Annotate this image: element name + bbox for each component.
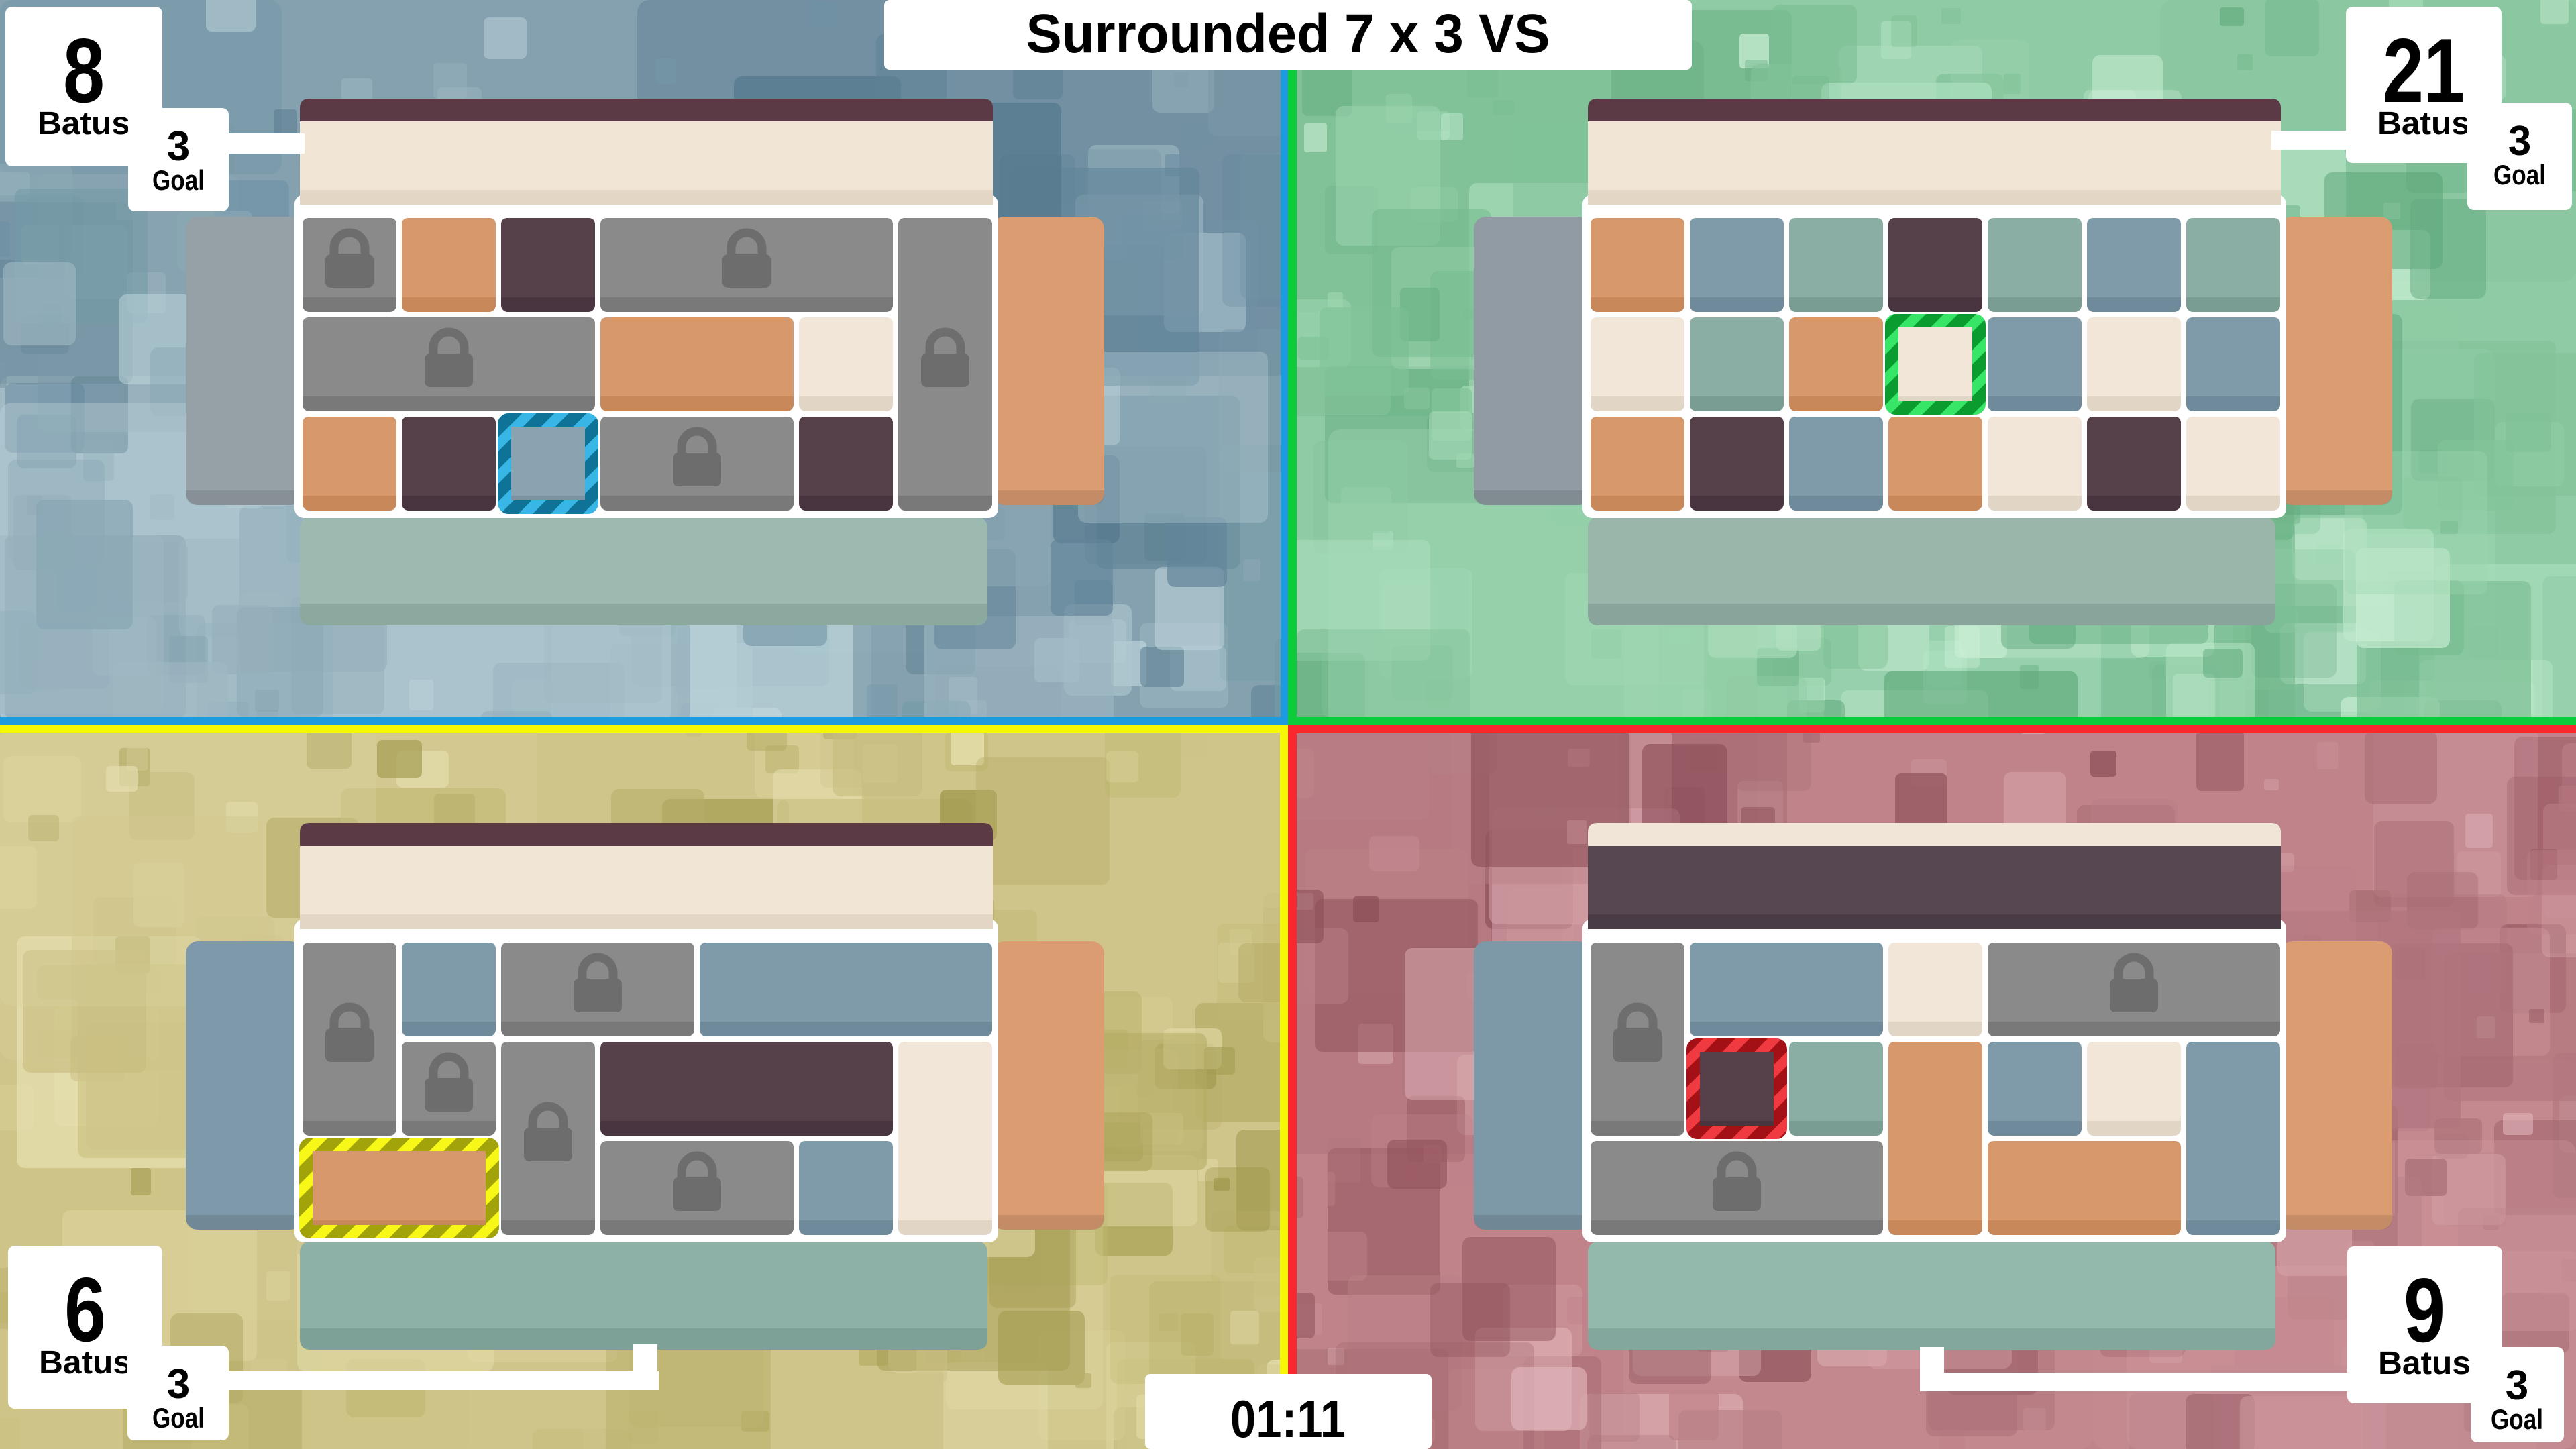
svg-text:3: 3 bbox=[2506, 1362, 2528, 1409]
svg-text:3: 3 bbox=[167, 1361, 190, 1407]
svg-text:Batus: Batus bbox=[39, 1345, 131, 1381]
svg-text:Batus: Batus bbox=[2378, 1346, 2471, 1381]
svg-text:Goal: Goal bbox=[152, 1402, 205, 1434]
svg-text:Batus: Batus bbox=[2377, 106, 2470, 142]
svg-text:Goal: Goal bbox=[2493, 159, 2546, 191]
svg-text:Goal: Goal bbox=[152, 164, 205, 196]
svg-text:Surrounded 7 x 3 VS: Surrounded 7 x 3 VS bbox=[1026, 3, 1550, 64]
svg-text:01:11: 01:11 bbox=[1230, 1389, 1346, 1448]
svg-text:Goal: Goal bbox=[2491, 1403, 2543, 1435]
svg-text:3: 3 bbox=[167, 123, 190, 170]
svg-text:3: 3 bbox=[2508, 118, 2531, 164]
svg-text:Batus: Batus bbox=[38, 106, 130, 142]
